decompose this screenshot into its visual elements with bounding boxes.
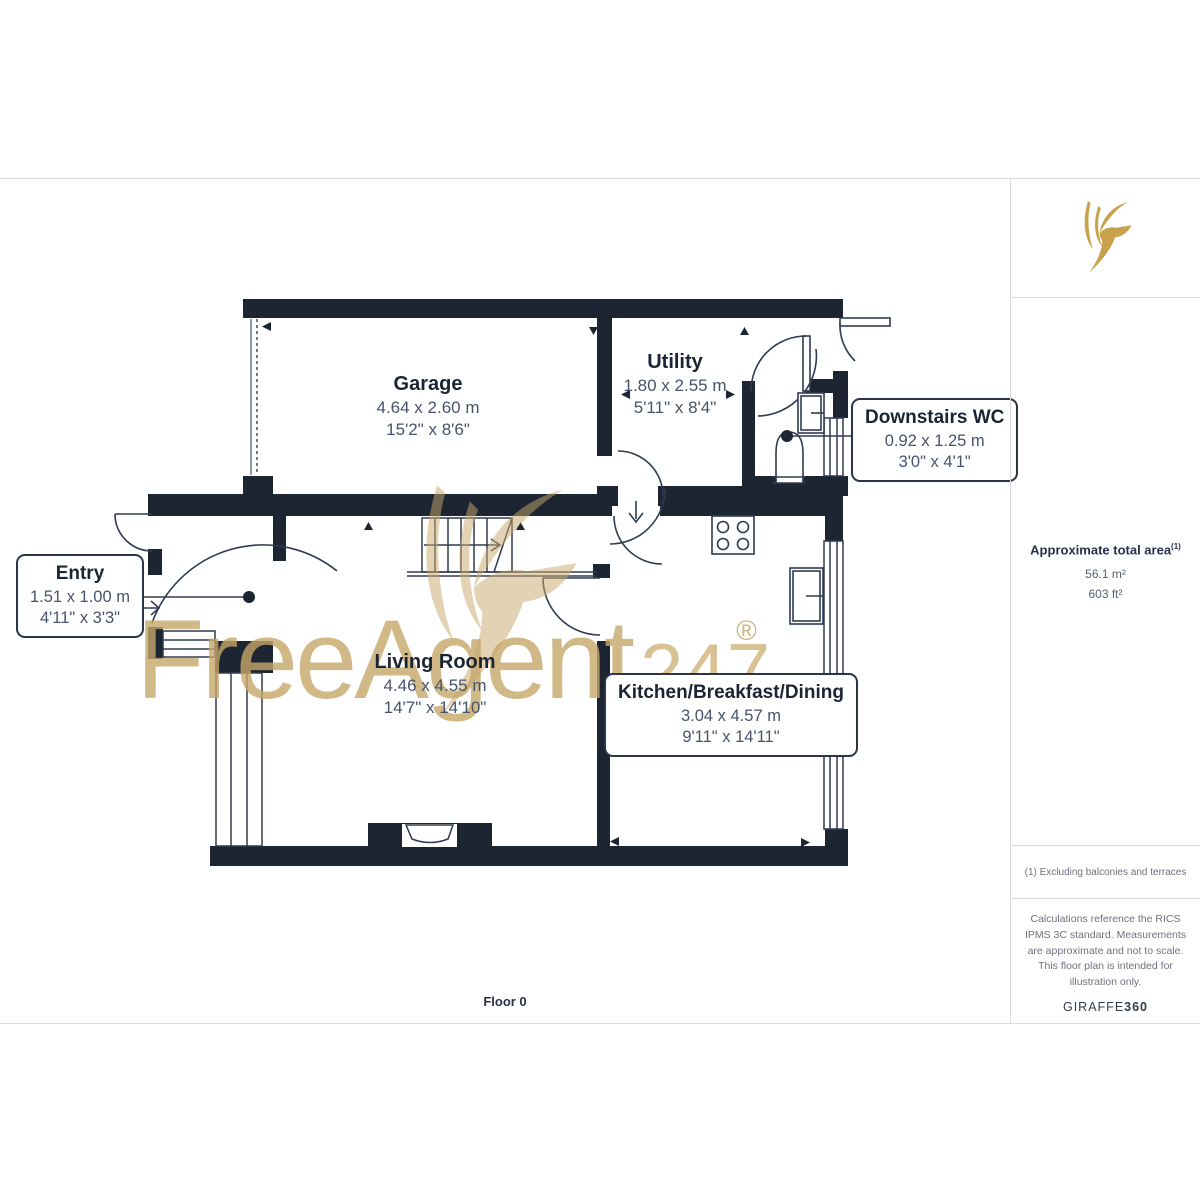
room-dim-metric: 3.04 x 4.57 m — [618, 706, 844, 727]
kitchen-sink-icon — [790, 568, 823, 624]
room-dim-imperial: 4'11" x 3'3" — [30, 608, 130, 629]
floorplan-page: FreeAgent247® Garage 4.64 x 2.60 m 15'2"… — [0, 0, 1200, 1200]
wc-sink-icon — [798, 393, 824, 433]
room-name: Entry — [30, 562, 130, 587]
brand-number: 360 — [1124, 1000, 1148, 1014]
disclaimer-text: Calculations reference the RICS IPMS 3C … — [1022, 912, 1189, 991]
brand-name: GIRAFFE — [1063, 1000, 1124, 1014]
room-dim-imperial: 15'2" x 8'6" — [318, 419, 538, 441]
front-door — [115, 514, 152, 551]
giraffe360-bird-logo-icon — [1074, 199, 1138, 277]
room-dim-metric: 1.51 x 1.00 m — [30, 587, 130, 608]
floorplan-canvas: FreeAgent247® Garage 4.64 x 2.60 m 15'2"… — [0, 178, 1200, 1024]
room-name: Utility — [575, 349, 775, 375]
room-dim-metric: 0.92 x 1.25 m — [865, 431, 1004, 452]
room-name: Living Room — [325, 649, 545, 675]
disclaimer-section: Calculations reference the RICS IPMS 3C … — [1011, 899, 1200, 1022]
room-label-downstairs-wc: Downstairs WC 0.92 x 1.25 m 3'0" x 4'1" — [851, 398, 1018, 482]
room-label-living-room: Living Room 4.46 x 4.55 m 14'7" x 14'10" — [325, 649, 545, 719]
area-title: Approximate total area(1) — [1030, 542, 1181, 557]
room-dim-imperial: 3'0" x 4'1" — [865, 452, 1004, 473]
garage-door — [251, 319, 257, 475]
area-footnote: (1) Excluding balconies and terraces — [1011, 846, 1200, 899]
area-footnote-marker: (1) — [1171, 542, 1181, 551]
room-dim-metric: 4.64 x 2.60 m — [318, 397, 538, 419]
kitchen-door — [614, 516, 662, 564]
window-wc-right — [824, 418, 843, 476]
room-label-utility: Utility 1.80 x 2.55 m 5'11" x 8'4" — [575, 349, 775, 419]
room-dim-imperial: 5'11" x 8'4" — [575, 397, 775, 419]
floor-plan: FreeAgent247® Garage 4.64 x 2.60 m 15'2"… — [0, 179, 1010, 1023]
area-metric-value: 56.1 m² — [1085, 567, 1126, 581]
room-name: Kitchen/Breakfast/Dining — [618, 681, 844, 706]
fireplace — [402, 824, 457, 847]
back-door — [840, 318, 890, 361]
window-entry — [163, 631, 215, 657]
room-dim-imperial: 9'11" x 14'11" — [618, 727, 844, 748]
utility-door — [618, 451, 663, 496]
total-area-section: Approximate total area(1) 56.1 m² 603 ft… — [1011, 298, 1200, 846]
room-label-entry: Entry 1.51 x 1.00 m 4'11" x 3'3" — [16, 554, 144, 638]
room-label-kitchen: Kitchen/Breakfast/Dining 3.04 x 4.57 m 9… — [604, 673, 858, 757]
room-label-garage: Garage 4.64 x 2.60 m 15'2" x 8'6" — [318, 371, 538, 441]
room-name: Garage — [318, 371, 538, 397]
stove-icon — [712, 516, 754, 554]
room-dim-metric: 1.80 x 2.55 m — [575, 375, 775, 397]
info-sidebar: Approximate total area(1) 56.1 m² 603 ft… — [1010, 179, 1200, 1023]
window-living-left — [216, 673, 262, 846]
floor-label: Floor 0 — [0, 994, 1010, 1009]
room-dim-imperial: 14'7" x 14'10" — [325, 697, 545, 719]
area-imperial-value: 603 ft² — [1088, 587, 1122, 601]
room-name: Downstairs WC — [865, 406, 1004, 431]
door-direction-arrow — [629, 501, 643, 522]
giraffe360-brand: GIRAFFE360 — [1063, 1000, 1148, 1014]
entry-living-door — [152, 545, 337, 623]
logo-section — [1011, 179, 1200, 298]
room-dim-metric: 4.46 x 4.55 m — [325, 675, 545, 697]
area-title-text: Approximate total area — [1030, 543, 1171, 558]
